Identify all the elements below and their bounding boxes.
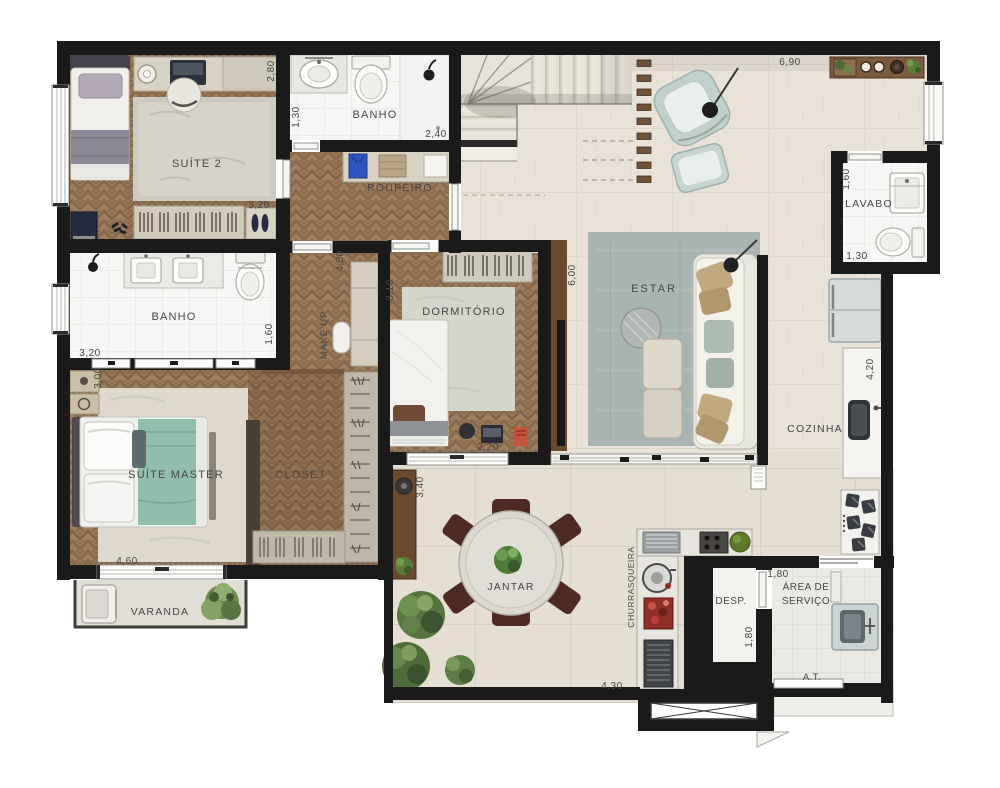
svg-text:A.T.: A.T. <box>803 672 821 683</box>
svg-text:MAKE UP: MAKE UP <box>319 311 330 359</box>
svg-text:1,30: 1,30 <box>291 106 302 127</box>
svg-text:1,80: 1,80 <box>744 626 755 647</box>
svg-text:SUÍTE MASTER: SUÍTE MASTER <box>128 468 224 481</box>
svg-text:BANHO: BANHO <box>151 311 196 323</box>
svg-text:1,30: 1,30 <box>846 251 867 262</box>
svg-text:CLOSET: CLOSET <box>275 469 326 481</box>
svg-text:3,20: 3,20 <box>248 200 269 211</box>
svg-text:4,30: 4,30 <box>601 681 622 692</box>
svg-text:ESTAR: ESTAR <box>631 283 677 295</box>
svg-text:4,80: 4,80 <box>335 250 346 271</box>
svg-text:1,60: 1,60 <box>841 168 852 189</box>
svg-text:SERVIÇO: SERVIÇO <box>782 596 830 607</box>
svg-text:ROUPEIRO: ROUPEIRO <box>367 182 433 194</box>
svg-text:3,40: 3,40 <box>415 476 426 497</box>
svg-text:1,60: 1,60 <box>264 323 275 344</box>
svg-text:2,20: 2,20 <box>477 442 498 453</box>
svg-text:1,80: 1,80 <box>767 569 788 580</box>
svg-text:LAVABO: LAVABO <box>845 198 893 210</box>
svg-text:6,00: 6,00 <box>567 264 578 285</box>
svg-text:6,90: 6,90 <box>779 57 800 68</box>
svg-text:BANHO: BANHO <box>352 109 397 121</box>
svg-text:3,10: 3,10 <box>385 279 396 300</box>
svg-text:3,20: 3,20 <box>79 348 100 359</box>
svg-text:DESP.: DESP. <box>715 596 746 607</box>
svg-text:VARANDA: VARANDA <box>131 606 189 618</box>
svg-text:SUÍTE 2: SUÍTE 2 <box>172 157 222 170</box>
svg-text:JANTAR: JANTAR <box>487 581 534 593</box>
svg-text:CHURRASQUEIRA: CHURRASQUEIRA <box>626 546 636 627</box>
svg-text:COZINHA: COZINHA <box>787 423 843 435</box>
svg-text:2,40: 2,40 <box>425 129 446 140</box>
svg-text:DORMITÓRIO: DORMITÓRIO <box>422 305 506 318</box>
svg-text:4,20: 4,20 <box>865 358 876 379</box>
svg-text:ÁREA DE: ÁREA DE <box>783 580 830 593</box>
svg-text:2,80: 2,80 <box>266 60 277 81</box>
svg-text:4,60: 4,60 <box>116 556 137 567</box>
svg-text:3,00: 3,00 <box>93 367 104 388</box>
